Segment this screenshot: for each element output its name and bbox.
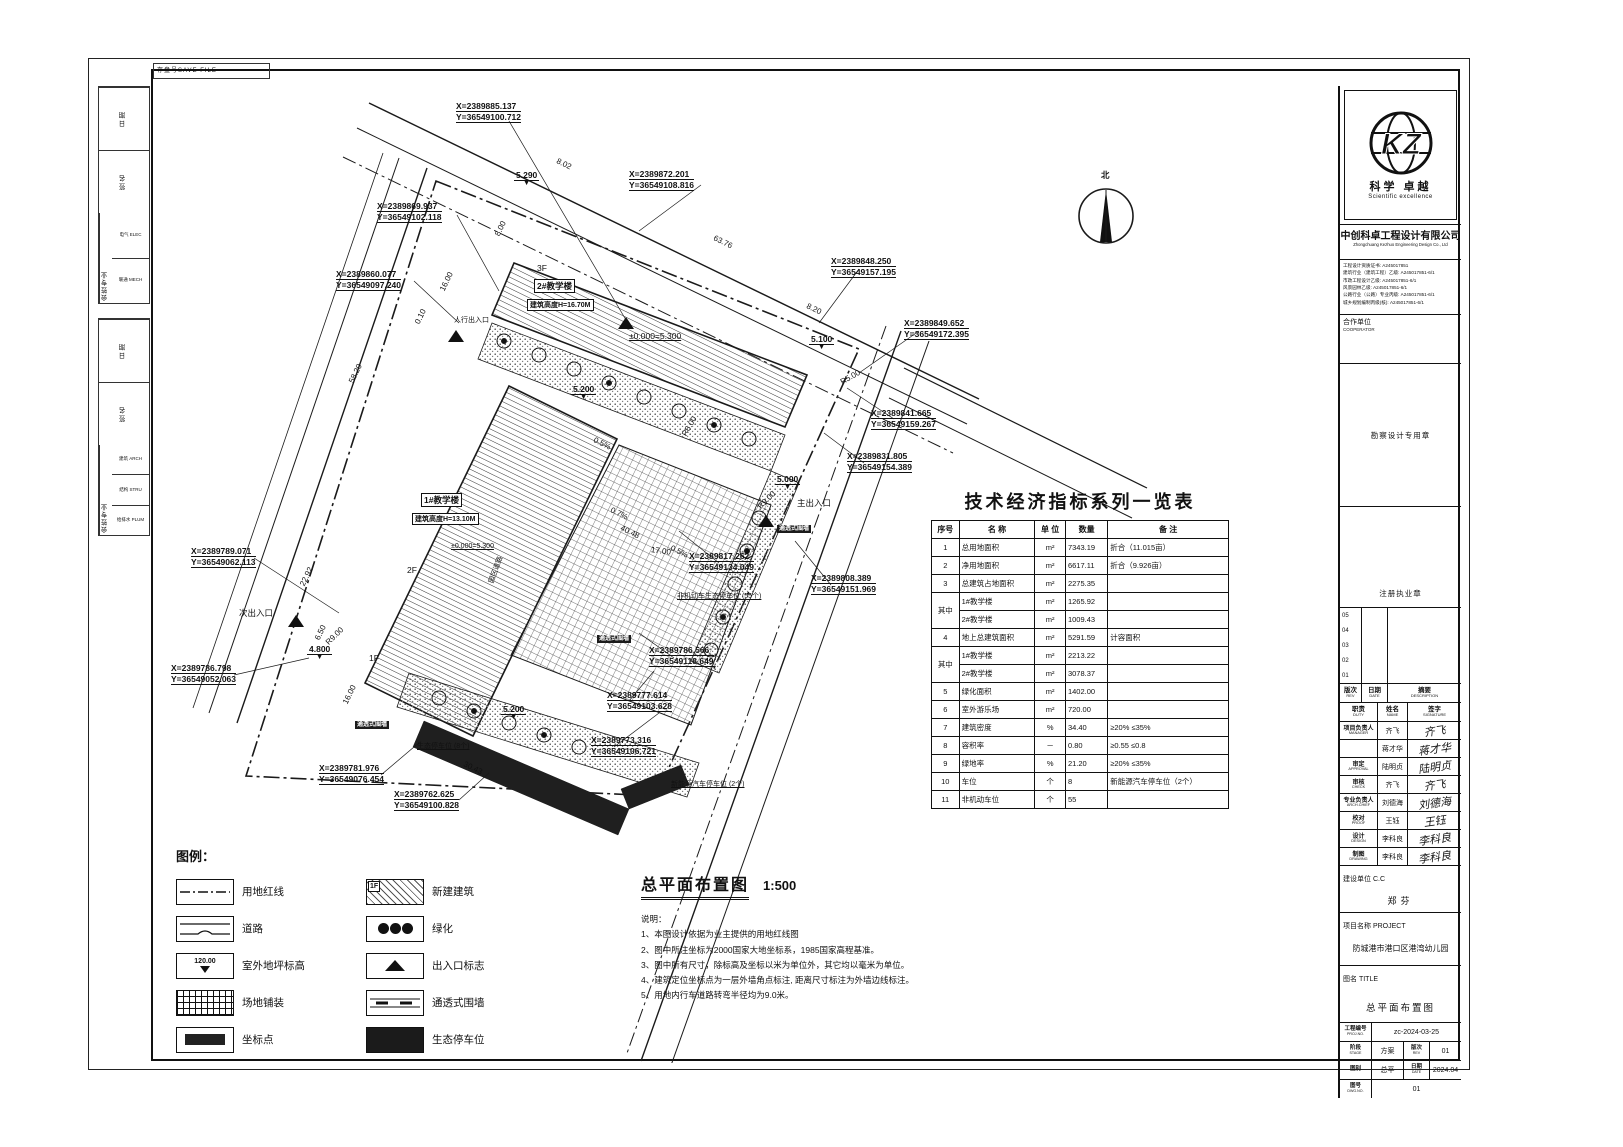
project-name: 防城港市港口区港湾幼儿园 [1343,943,1458,954]
legend-item: 场地铺装 [176,984,366,1021]
revision-header-cell: 摘要DESCRIPTION [1388,684,1461,702]
indicator-no: 8 [932,737,960,755]
legend-swatch-road [176,916,234,942]
north-arrow [1079,189,1133,243]
indicator-table: 序号名 称单 位数量备 注1总用地面积m²7343.19折合（11.015亩）2… [931,520,1229,809]
personnel-duty: 校对PROOF [1340,812,1378,829]
personnel-row: 专业负责人ARCH.CHIEF刘德海刘德海 [1340,794,1461,812]
indicator-header-cell: 序号 [932,521,960,539]
legend-item: 生态停车位 [366,1021,566,1058]
indicator-unit: m² [1035,647,1066,665]
indicator-qty: 720.00 [1065,701,1107,719]
indicator-row: 1总用地面积m²7343.19折合（11.015亩） [932,539,1229,557]
indicator-name: 总建筑占地面积 [959,575,1035,593]
legend-item-label: 新建建筑 [432,884,474,899]
legend-item: 出入口标志 [366,947,566,984]
indicator-row: 2净用地面积m²6617.11折合（9.926亩） [932,557,1229,575]
indicator-row: 11非机动车位个55 [932,791,1229,809]
project-number: zc-2024-03-25 [1372,1023,1461,1041]
indicator-note [1108,647,1229,665]
legend-swatch-fence [366,990,424,1016]
drawing-title-block: 总平面布置图 1:500 说明： 1、本图设计依据为业主提供的用地红线图2、图中… [641,871,1061,1004]
indicator-unit: m² [1035,701,1066,719]
type-value: 总平 [1372,1061,1404,1079]
indicator-row: 9绿地率%21.20≥20% ≤35% [932,755,1229,773]
revision-no: 04 [1340,623,1362,638]
indicator-row: 其中1#教学楼m²2213.22 [932,647,1229,665]
indicator-note: ≥20% ≤35% [1108,719,1229,737]
indicator-note [1108,575,1229,593]
sheet-title: 总平面布置图 [1343,1000,1458,1014]
indicator-note: 折合（11.015亩） [1108,539,1229,557]
note-line: 2、图中所注坐标为2000国家大地坐标系，1985国家高程基准。 [641,943,1061,958]
signoff-sign-label: 签名 [99,382,149,445]
logo-slogan-cn: 科学 卓越 [1369,178,1431,194]
legend-item-label: 绿化 [432,921,453,936]
personnel-row: 校对PROOF王钰王钰 [1340,812,1461,830]
indicator-header-cell: 数量 [1065,521,1107,539]
indicator-unit: m² [1035,593,1066,611]
indicator-table-block: 技术经济指标系列一览表 序号名 称单 位数量备 注1总用地面积m²7343.19… [931,488,1229,809]
credential-line: 市政工程设计乙级: A245017851-6/1 [1343,277,1458,284]
indicator-note [1108,701,1229,719]
personnel-name: 齐飞 [1378,776,1408,793]
indicator-qty: 1009.43 [1065,611,1107,629]
indicator-no: 11 [932,791,960,809]
signoff-discipline: 电气 ELEC [112,213,149,259]
sheet-title-label: 图名 TITLE [1343,976,1378,983]
indicator-row: 其中1#教学楼m²1265.92 [932,593,1229,611]
legend-swatch-newbuild: 1F [366,879,424,905]
legend-item: 通透式围墙 [366,984,566,1021]
credential-line: 风景园林乙级: A245017851-6/1 [1343,284,1458,291]
indicator-row: 5绿化面积m²1402.00 [932,683,1229,701]
company-logo: KZ 科学 卓越 Scientific excellence [1344,90,1457,220]
signoff-prof-label: 会签专业 [99,445,112,535]
indicator-name: 绿化面积 [959,683,1035,701]
revision-row: 04 [1340,623,1461,638]
signoff-bar: 日期签名会签专业电气 ELEC暖通 MECH日期签名会签专业建筑 ARCH结构 … [98,86,150,550]
drawing-scale: 1:500 [763,878,796,893]
legend-item-label: 场地铺装 [242,995,284,1010]
indicator-unit: m² [1035,665,1066,683]
legend-entrance-triangle [385,960,405,971]
indicator-qty: 55 [1065,791,1107,809]
legend-item-label: 道路 [242,921,263,936]
indicator-name: 地上总建筑面积 [959,629,1035,647]
indicator-no: 其中 [932,593,960,629]
indicator-qty: 1402.00 [1065,683,1107,701]
indicator-name: 室外游乐场 [959,701,1035,719]
drawing-sheet: 存盘号SAVE FILE 日期签名会签专业电气 ELEC暖通 MECH日期签名会… [0,0,1623,1147]
personnel-row: 审核CHECK齐飞齐飞 [1340,776,1461,794]
personnel-name: 李科良 [1378,830,1408,847]
signoff-group: 日期签名会签专业建筑 ARCH结构 STRU给排水 PLUM [98,318,150,536]
indicator-note [1108,791,1229,809]
indicator-table-title: 技术经济指标系列一览表 [931,488,1229,514]
indicator-unit: m² [1035,575,1066,593]
personnel-duty: 设计DESIGN [1340,830,1378,847]
personnel-table: 项目负责人MANAGER齐飞齐飞蒋才华蒋才华审定APPROVAL陆明贞陆明贞审核… [1340,722,1461,866]
indicator-name: 建筑密度 [959,719,1035,737]
legend-swatch-elev: 120.00 [176,953,234,979]
personnel-name: 蒋才华 [1378,740,1408,757]
drawing-title: 总平面布置图 [641,871,749,900]
indicator-note: 计容面积 [1108,629,1229,647]
indicator-qty: 7343.19 [1065,539,1107,557]
indicator-note: 新能源汽车停车位（2个） [1108,773,1229,791]
indicator-qty: 6617.11 [1065,557,1107,575]
legend-item-label: 室外地坪标高 [242,958,305,973]
project-label: 项目名称 PROJECT [1343,923,1406,930]
client-name: 郑芬 [1343,894,1458,907]
paper: 存盘号SAVE FILE 日期签名会签专业电气 ELEC暖通 MECH日期签名会… [88,58,1470,1070]
indicator-no: 5 [932,683,960,701]
notes-label: 说明： [641,912,1061,927]
indicator-row: 7建筑密度%34.40≥20% ≤35% [932,719,1229,737]
revision-no: 03 [1340,638,1362,653]
title-block: KZ 科学 卓越 Scientific excellence 中创科卓工程设计有… [1338,86,1461,1098]
credential-line: 工程设计资质证书: A245017851 [1343,262,1458,269]
indicator-qty: 2275.35 [1065,575,1107,593]
indicator-note: ≥20% ≤35% [1108,755,1229,773]
legend-item: 绿化 [366,910,566,947]
indicator-qty: 34.40 [1065,719,1107,737]
legend-swatch-entrance [366,953,424,979]
indicator-no: 10 [932,773,960,791]
personnel-duty: 审定APPROVAL [1340,758,1378,775]
indicator-unit: % [1035,755,1066,773]
indicator-unit: 个 [1035,791,1066,809]
indicator-header-row: 序号名 称单 位数量备 注 [932,521,1229,539]
legend-item-label: 出入口标志 [432,958,485,973]
legend-swatch-coord: X=XXXXXXX.XXXY=XXXXXXXX.XXX [176,1027,234,1053]
signoff-professions: 会签专业建筑 ARCH结构 STRU给排水 PLUM [99,445,149,535]
legend-item: X=XXXXXXX.XXXY=XXXXXXXX.XXX坐标点 [176,1021,366,1058]
duty-header-cell: 姓名NAME [1378,703,1408,721]
indicator-header-cell: 单 位 [1035,521,1066,539]
revision-row: 01 [1340,668,1461,683]
indicator-note [1108,665,1229,683]
indicator-name: 绿地率 [959,755,1035,773]
personnel-duty: 项目负责人MANAGER [1340,722,1378,739]
client-label: 建设单位 C.C [1343,876,1385,883]
legend-item-label: 生态停车位 [432,1032,485,1047]
personnel-name: 刘德海 [1378,794,1408,811]
indicator-name: 容积率 [959,737,1035,755]
legend-swatch-parking [366,1027,424,1053]
indicator-header-cell: 名 称 [959,521,1035,539]
indicator-unit: m² [1035,683,1066,701]
indicator-unit: % [1035,719,1066,737]
personnel-row: 设计DESIGN李科良李科良 [1340,830,1461,848]
indicator-no: 4 [932,629,960,647]
indicator-qty: 1265.92 [1065,593,1107,611]
signoff-discipline: 建筑 ARCH [112,445,149,475]
signoff-sign-label: 签名 [99,150,149,213]
credential-line: 公路行业（公路）专业丙级: A245017851-6/1 [1343,291,1458,298]
legend: 图例： 用地红线道路120.00室外地坪标高场地铺装X=XXXXXXX.XXXY… [176,846,576,1058]
legend-swatch-green [366,916,424,942]
indicator-unit: m² [1035,629,1066,647]
indicator-qty: 5291.59 [1065,629,1107,647]
legend-item: 用地红线 [176,873,366,910]
indicator-qty: 0.80 [1065,737,1107,755]
indicator-unit: m² [1035,611,1066,629]
note-line: 5、用地内行车道路转弯半径均为9.0米。 [641,988,1061,1003]
indicator-note [1108,593,1229,611]
signoff-professions: 会签专业电气 ELEC暖通 MECH [99,213,149,303]
indicator-row: 2#教学楼m²3078.37 [932,665,1229,683]
indicator-note [1108,683,1229,701]
legend-swatch-redline [176,879,234,905]
logo-slogan-en: Scientific excellence [1368,194,1433,200]
company-name-en: Zhongchuang Kezhuo Engineering Design Co… [1340,242,1461,247]
indicator-no: 其中 [932,647,960,683]
legend-floor-tag: 1F [368,881,380,892]
cooperator-label: 合作单位 [1343,317,1458,327]
indicator-unit: m² [1035,539,1066,557]
personnel-row: 项目负责人MANAGER齐飞齐飞 [1340,722,1461,740]
stage-value: 方案 [1372,1042,1404,1060]
personnel-name: 陆明贞 [1378,758,1408,775]
indicator-no: 6 [932,701,960,719]
indicator-no: 1 [932,539,960,557]
registered-practice-seal-area: 注册执业章 [1340,507,1461,608]
revision-row: 05 [1340,608,1461,623]
legend-item: 120.00室外地坪标高 [176,947,366,984]
legend-item-label: 用地红线 [242,884,284,899]
signoff-discipline: 结构 STRU [112,475,149,505]
indicator-no: 9 [932,755,960,773]
indicator-name: 1#教学楼 [959,647,1035,665]
rev-value: 01 [1430,1042,1461,1060]
note-line: 1、本图设计依据为业主提供的用地红线图 [641,927,1061,942]
logo-kz-text: KZ [1381,128,1423,161]
revision-header-cell: 日期DATE [1362,684,1388,702]
legend-coord-sample: X=XXXXXXX.XXXY=XXXXXXXX.XXX [185,1034,225,1046]
indicator-qty: 2213.22 [1065,647,1107,665]
indicator-name: 净用地面积 [959,557,1035,575]
signoff-group: 日期签名会签专业电气 ELEC暖通 MECH [98,86,150,304]
personnel-name: 齐飞 [1378,722,1408,739]
indicator-note: ≥0.55 ≤0.8 [1108,737,1229,755]
legend-item-label: 坐标点 [242,1032,274,1047]
indicator-qty: 3078.37 [1065,665,1107,683]
indicator-header-cell: 备 注 [1108,521,1229,539]
drawing-number: 01 [1372,1080,1461,1098]
note-line: 3、图中所有尺寸，除标高及坐标以米为单位外，其它均以毫米为单位。 [641,958,1061,973]
indicator-name: 车位 [959,773,1035,791]
indicator-row: 2#教学楼m²1009.43 [932,611,1229,629]
legend-item: 道路 [176,910,366,947]
revision-header: 版次REV日期DATE摘要DESCRIPTION [1340,684,1461,703]
indicator-row: 4地上总建筑面积m²5291.59计容面积 [932,629,1229,647]
indicator-note: 折合（9.926亩） [1108,557,1229,575]
revision-rows: 0504030201 [1340,608,1461,684]
indicator-name: 2#教学楼 [959,611,1035,629]
personnel-duty: 专业负责人ARCH.CHIEF [1340,794,1378,811]
credential-line: 建筑行业（建筑工程）乙级: A245017851-6/1 [1343,269,1458,276]
indicator-unit: 个 [1035,773,1066,791]
personnel-row: 制图DRAWING李科良李科良 [1340,848,1461,865]
duty-header: 职责DUTY姓名NAME签字SIGNATURE [1340,703,1461,722]
credential-line: 城乡规划编制丙级(核): A245017851-6/1 [1343,299,1458,306]
revision-row: 02 [1340,653,1461,668]
indicator-qty: 21.20 [1065,755,1107,773]
survey-design-seal-area: 勘察设计专用章 [1340,364,1461,507]
signoff-prof-label: 会签专业 [99,213,112,303]
indicator-name: 非机动车位 [959,791,1035,809]
indicator-no: 3 [932,575,960,593]
indicator-no: 7 [932,719,960,737]
revision-row: 03 [1340,638,1461,653]
legend-item: 1F新建建筑 [366,873,566,910]
indicator-qty: 8 [1065,773,1107,791]
legend-swatch-paving [176,990,234,1016]
indicator-name: 1#教学楼 [959,593,1035,611]
personnel-name: 李科良 [1378,848,1408,865]
indicator-unit: m² [1035,557,1066,575]
indicator-row: 10车位个8新能源汽车停车位（2个） [932,773,1229,791]
signoff-date-label: 日期 [99,319,149,382]
revision-no: 05 [1340,608,1362,623]
signoff-discipline: 给排水 PLUM [112,506,149,535]
personnel-duty: 制图DRAWING [1340,848,1378,865]
personnel-name: 王钰 [1378,812,1408,829]
revision-header-cell: 版次REV [1340,684,1362,702]
personnel-row: 蒋才华蒋才华 [1340,740,1461,758]
notes: 说明： 1、本图设计依据为业主提供的用地红线图2、图中所注坐标为2000国家大地… [641,912,1061,1004]
note-line: 4、建筑定位坐标点为一层外墙角点标注, 距离尺寸标注为外墙边线标注。 [641,973,1061,988]
indicator-no: 2 [932,557,960,575]
company-name: 中创科卓工程设计有限公司 [1340,227,1461,242]
date-value: 2024.04 [1430,1061,1461,1079]
indicator-row: 3总建筑占地面积m²2275.35 [932,575,1229,593]
legend-item-label: 通透式围墙 [432,995,485,1010]
legend-elevation-triangle [200,966,210,973]
duty-header-cell: 职责DUTY [1340,703,1378,721]
signoff-date-label: 日期 [99,87,149,150]
credentials: 工程设计资质证书: A245017851建筑行业（建筑工程）乙级: A24501… [1340,260,1461,315]
revision-no: 01 [1340,668,1362,683]
indicator-row: 8容积率－0.80≥0.55 ≤0.8 [932,737,1229,755]
indicator-row: 6室外游乐场m²720.00 [932,701,1229,719]
revision-no: 02 [1340,653,1362,668]
indicator-note [1108,611,1229,629]
signoff-discipline: 暖通 MECH [112,259,149,304]
legend-title: 图例： [176,846,576,865]
legend-elevation-sample: 120.00 [194,958,215,973]
indicator-name: 总用地面积 [959,539,1035,557]
personnel-duty: 审核CHECK [1340,776,1378,793]
personnel-row: 审定APPROVAL陆明贞陆明贞 [1340,758,1461,776]
indicator-unit: － [1035,737,1066,755]
indicator-name: 2#教学楼 [959,665,1035,683]
